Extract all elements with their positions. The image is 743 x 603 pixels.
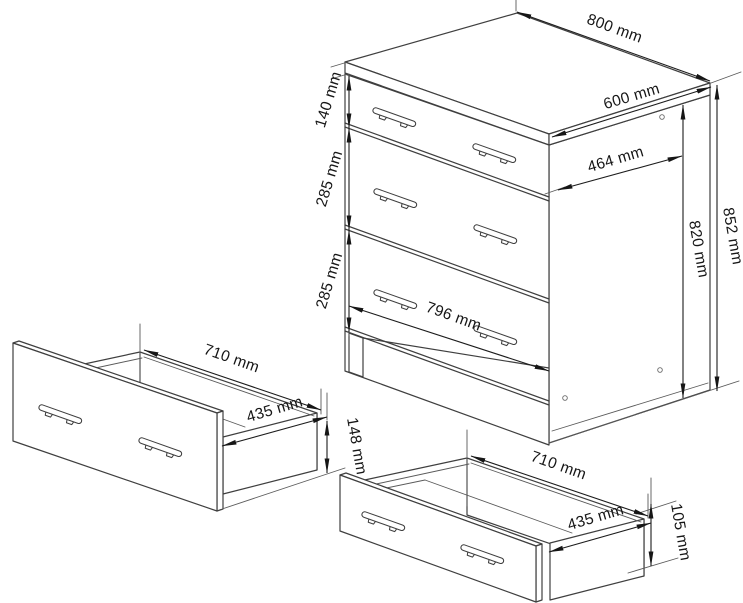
drawer-small-view: 710 mm 435 mm 105 mm xyxy=(340,430,694,602)
dim-label-middle-drawer-height: 285 mm xyxy=(313,149,346,209)
dim-label-bottom-drawer-height: 285 mm xyxy=(313,251,346,311)
drawer-left-rim-inner xyxy=(367,464,469,486)
furniture-dimension-drawing: 800 mm 600 mm 464 mm 852 mm 820 mm 140 m… xyxy=(0,0,743,603)
extension-line xyxy=(331,63,346,68)
dim-label-large-drawer-front-height: 148 mm xyxy=(343,416,370,476)
cam-hole-icon xyxy=(660,115,665,120)
drawer-left-rim xyxy=(360,458,467,481)
cam-hole-icon xyxy=(563,396,568,401)
drawer-large-view: 710 mm 435 mm 148 mm xyxy=(13,324,370,511)
drawer-front-side-edge xyxy=(217,411,223,511)
technical-drawing-canvas: 800 mm 600 mm 464 mm 852 mm 820 mm 140 m… xyxy=(0,0,743,603)
dim-label-large-drawer-width: 710 mm xyxy=(201,341,261,376)
dim-label-top-drawer-height: 140 mm xyxy=(312,70,345,130)
cam-hole-icon xyxy=(658,368,663,373)
extension-line xyxy=(711,72,741,83)
cabinet-view: 800 mm 600 mm 464 mm 852 mm 820 mm 140 m… xyxy=(312,0,743,445)
dim-label-total-height: 852 mm xyxy=(719,206,743,266)
plinth-leg xyxy=(349,333,363,377)
drawer-front-side-edge xyxy=(536,544,542,602)
dim-label-small-drawer-front-height: 105 mm xyxy=(667,502,694,562)
